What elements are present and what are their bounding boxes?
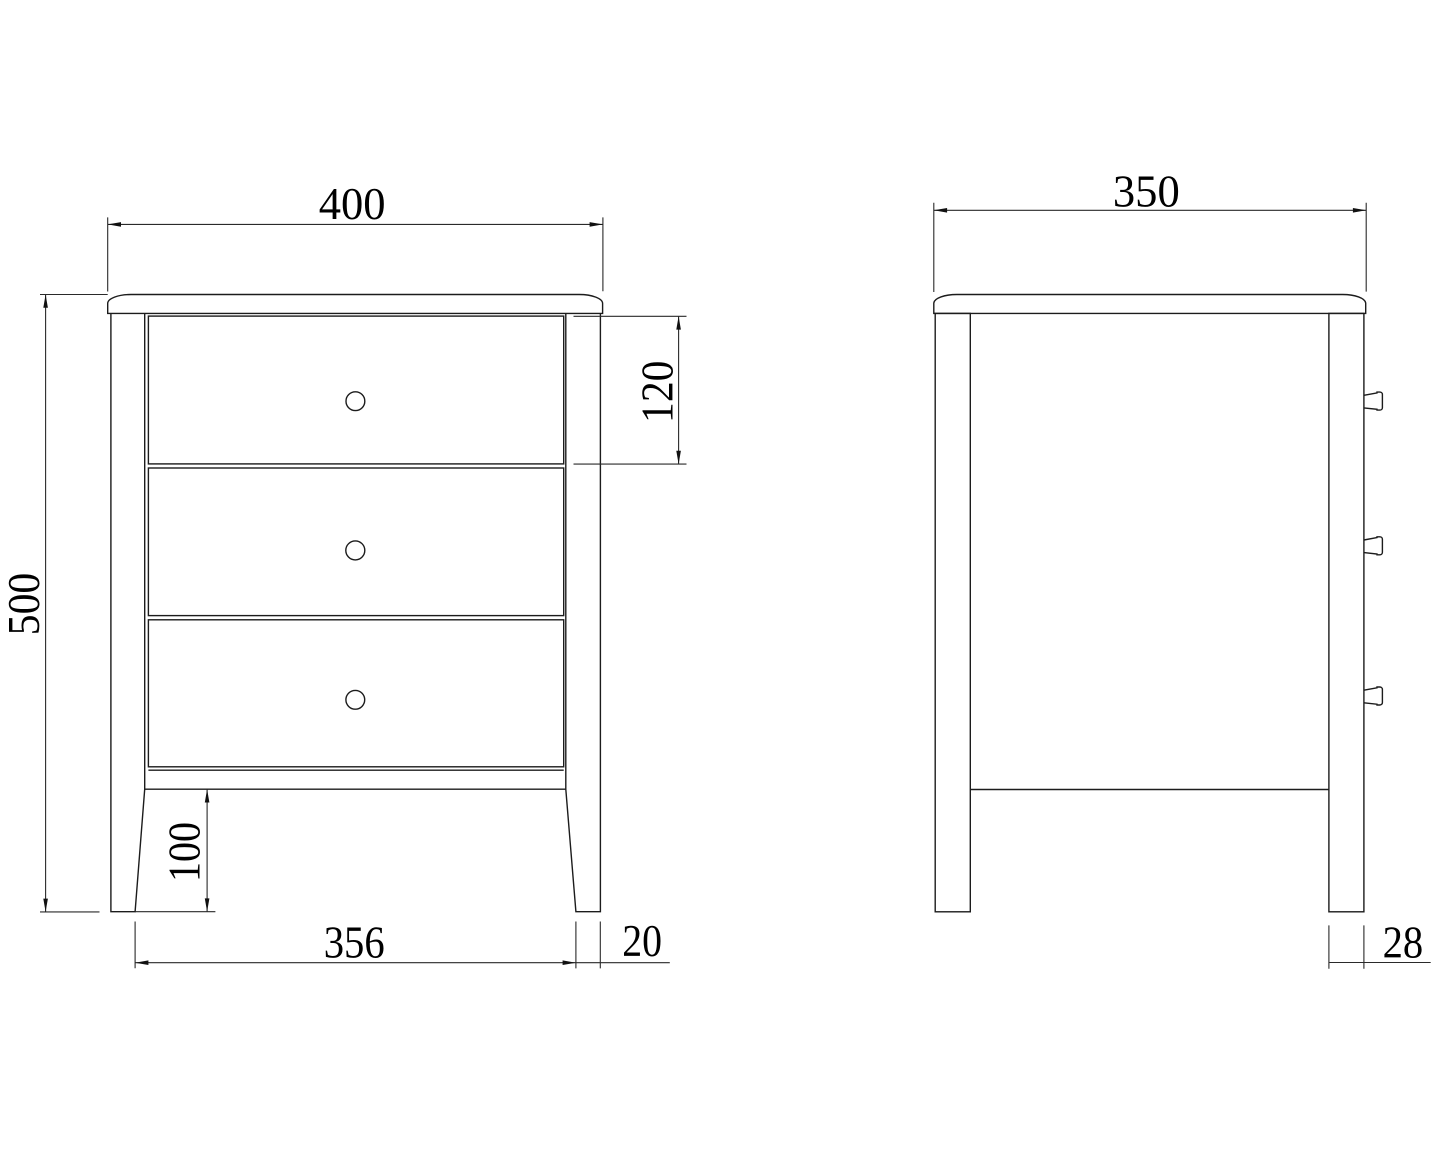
svg-text:500: 500 bbox=[0, 573, 49, 635]
svg-text:356: 356 bbox=[324, 917, 385, 967]
svg-text:28: 28 bbox=[1383, 917, 1424, 967]
svg-text:100: 100 bbox=[160, 822, 210, 882]
svg-text:350: 350 bbox=[1113, 167, 1180, 217]
svg-text:120: 120 bbox=[632, 361, 682, 423]
svg-text:20: 20 bbox=[622, 916, 662, 966]
svg-text:400: 400 bbox=[319, 179, 386, 229]
